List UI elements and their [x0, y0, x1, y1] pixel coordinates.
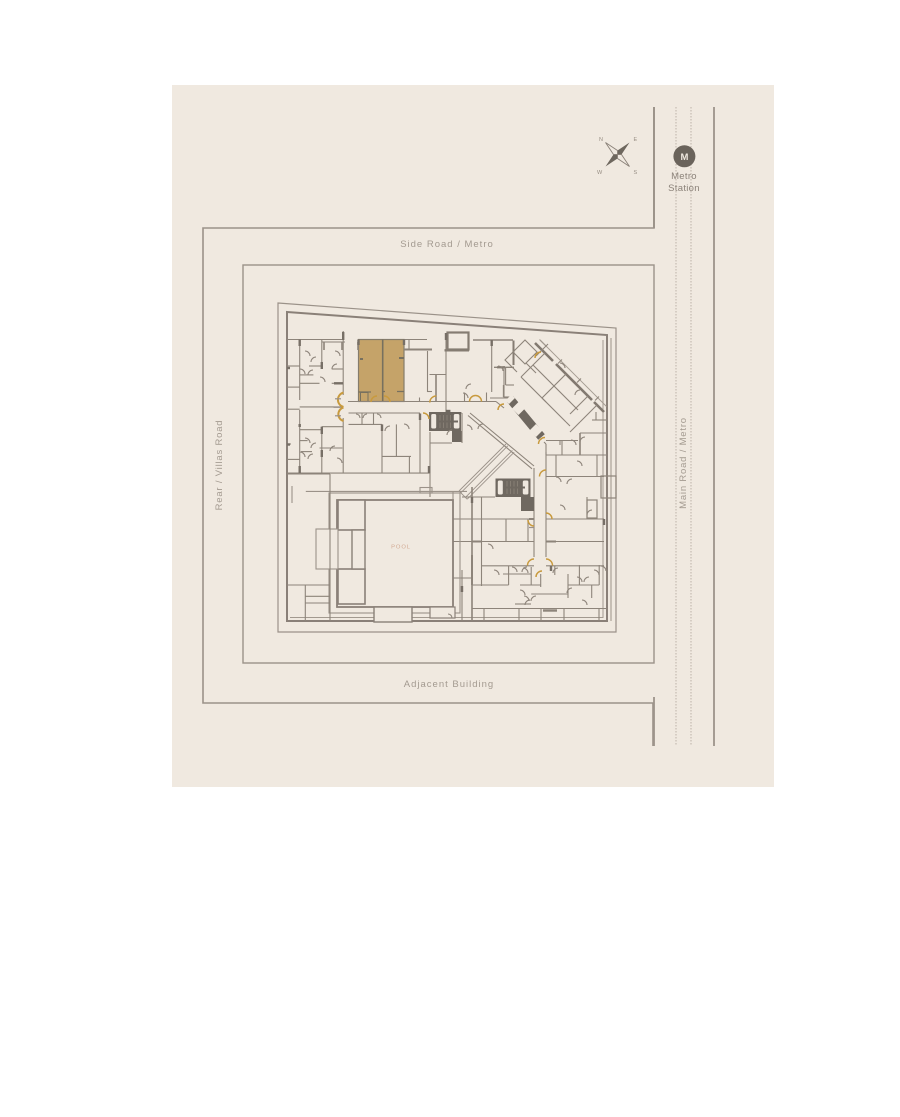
svg-text:Rear / Villas Road: Rear / Villas Road	[214, 420, 225, 511]
svg-text:Metro: Metro	[671, 171, 697, 182]
svg-text:S: S	[634, 170, 638, 176]
svg-text:N: N	[599, 137, 603, 143]
svg-text:Main Road / Metro: Main Road / Metro	[678, 417, 689, 509]
svg-text:Adjacent Building: Adjacent Building	[404, 679, 494, 690]
svg-text:W: W	[597, 170, 603, 176]
svg-text:POOL: POOL	[391, 545, 411, 551]
svg-text:Station: Station	[668, 183, 700, 194]
svg-text:M: M	[680, 152, 688, 163]
svg-text:Side Road / Metro: Side Road / Metro	[400, 239, 494, 250]
svg-text:E: E	[634, 137, 638, 143]
